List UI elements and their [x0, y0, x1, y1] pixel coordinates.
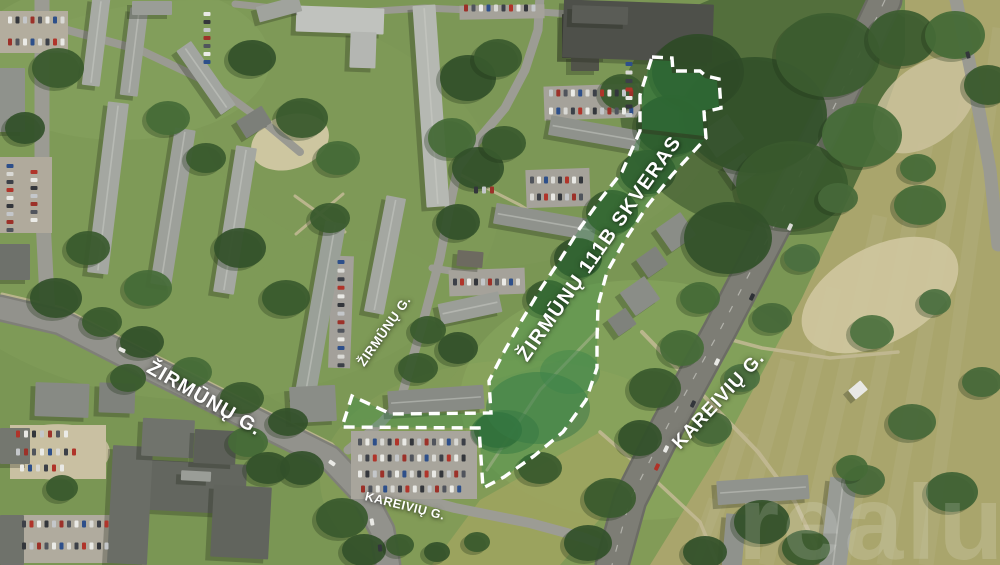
aerial-screenshot: ŽIRMŪNŲ 111B SKVERAS ŽIRMŪNŲ G. ŽIRMŪNŲ …	[0, 0, 1000, 565]
satellite-map-canvas	[0, 0, 1000, 565]
